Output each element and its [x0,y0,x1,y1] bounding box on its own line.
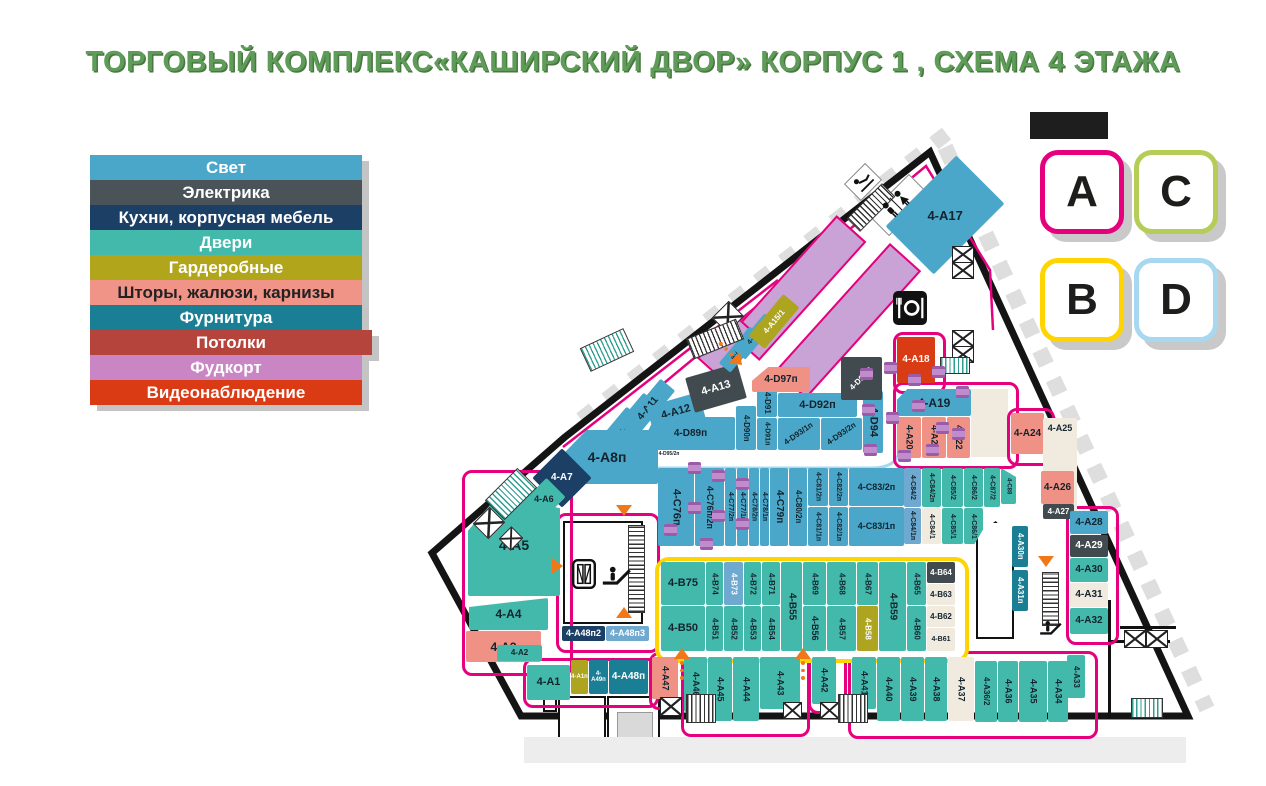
utility-closet [617,712,653,740]
unit-label: 4-A48п2 [566,629,601,638]
unit-label: 4-C84/2 [909,475,916,500]
foodcourt-table-icon [912,400,925,412]
escalator-direction-arrow-icon [674,648,690,682]
unit-4-D90п[interactable]: 4-D90п [736,406,756,450]
unit-label: 4-C88 [1006,478,1012,494]
foodcourt-table-icon [664,524,677,536]
elevator-icon [952,262,974,279]
stairs-icon [1131,698,1163,718]
unit-4-C84/1[interactable]: 4-C84/1 [922,508,941,544]
unit-label: 4-B68 [838,573,846,595]
unit-label: 4-C83/1п [858,522,895,531]
unit-4-A29[interactable]: 4-A29 [1070,535,1108,557]
unit-4-A28[interactable]: 4-A28 [1070,511,1108,534]
unit-label: 4-B72 [749,573,757,595]
unit-label: 4-A45 [716,677,725,702]
unit-4-B73[interactable]: 4-B73 [724,562,743,605]
unit-label: 4-B60 [913,618,921,640]
unit-label: 4-A25 [1048,424,1073,433]
unit-label: 4-D90п [742,415,750,442]
unit-4-A1п[interactable]: 4-A1п [571,660,588,694]
unit-4-B63[interactable]: 4-B63 [927,584,955,605]
unit-4-A35[interactable]: 4-A35 [1019,661,1047,722]
unit-label: 4-A27 [1048,508,1070,516]
unit-label: 4-C78/1п [761,492,768,521]
unit-4-C77/2п[interactable]: 4-C77/2п [725,468,736,546]
unit-label: 4-D95/2п [659,452,680,457]
unit-label: 4-B64 [930,569,952,577]
unit-4-D89п[interactable]: 4-D89п [646,417,735,450]
unit-label: 4-C81/1п [815,512,822,541]
unit-label: 4-B61 [931,636,950,643]
unit-label: 4-B53 [749,618,757,640]
unit-4-C79п[interactable]: 4-C79п [770,468,788,546]
unit-label: 4-A17 [927,209,962,222]
unit-4-B68[interactable]: 4-B68 [827,562,856,605]
down-arrow-icon [616,505,632,516]
unit-4-B51[interactable]: 4-B51 [706,606,723,651]
unit-4-B75[interactable]: 4-B75 [661,562,705,605]
unit-label: 4-B57 [838,618,846,640]
unit-label: 4-B65 [913,573,921,595]
unit-label: 4-A20 [905,425,914,450]
unit-label: 4-A43 [776,671,785,696]
foodcourt-table-icon [886,412,899,424]
unit-4-A40[interactable]: 4-A40 [877,657,900,721]
unit-label: 4-C81/2п [815,472,822,501]
unit-4-A26[interactable]: 4-A26 [1041,471,1074,504]
unit-4-B72[interactable]: 4-B72 [744,562,761,605]
unit-label: 4-C76п/2п [705,486,714,529]
unit-4-A48п3[interactable]: 4-A48п3 [606,626,649,641]
elevator-icon [1124,630,1146,648]
unit-4-C84/2[interactable]: 4-C84/2 [904,468,921,507]
restaurant-icon [893,291,927,325]
unit-4-C85/2[interactable]: 4-C85/2 [942,468,963,507]
unit-label: 4-A36/2 [982,677,990,705]
unit-label: 4-D97п [764,375,797,385]
foodcourt-table-icon [688,502,701,514]
unit-label: 4-D89п [674,429,707,439]
unit-label: 4-C77/2п [727,492,734,521]
foodcourt-table-icon [884,362,897,374]
foodcourt-table-icon [932,366,945,378]
foodcourt-table-icon [712,470,725,482]
unit-label: 4-A33 [1072,666,1080,688]
escalator-person-icon [600,562,634,590]
unit-4-C84/2п[interactable]: 4-C84/2п [922,468,941,507]
unit-4-C86/2[interactable]: 4-C86/2 [964,468,983,507]
unit-label: 4-B63 [930,591,952,599]
unit-label: 4-A35 [1029,679,1038,704]
unit-4-C82/1п[interactable]: 4-C82/1п [829,507,848,546]
foodcourt-table-icon [712,510,725,522]
unit-label: 4-C86/2 [970,475,977,500]
unit-label: 4-C79п [774,490,784,523]
escalator-icon [686,694,716,723]
foodcourt-table-icon [936,422,949,434]
unit-4-A49п[interactable]: 4-A49п [589,660,608,694]
unit-label: 4-D91п [764,422,771,445]
unit-4-B60[interactable]: 4-B60 [907,606,926,651]
elevator-doors-icon [572,558,596,590]
escalator-person-icon [1038,618,1064,638]
unit-4-C80/2п[interactable]: 4-C80/2п [789,468,807,546]
unit-label: 4-C80/2п [794,490,802,523]
unit-label: 4-C83/2п [858,483,895,492]
unit-label: 4-B54 [767,618,775,640]
foodcourt-table-icon [860,368,873,380]
unit-4-B52[interactable]: 4-B52 [724,606,743,651]
unit-label: 4-B58 [864,618,872,640]
unit-4-B55[interactable]: 4-B55 [781,562,802,651]
unit-4-C83/2п[interactable]: 4-C83/2п [849,468,904,506]
unit-4-D95/2п[interactable]: 4-D95/2п [648,450,690,459]
unit-label: 4-A2 [511,649,528,657]
unit-4-C81/2п[interactable]: 4-C81/2п [808,468,828,506]
unit-4-D91[interactable]: 4-D91 [757,388,777,417]
unit-4-C78/1п[interactable]: 4-C78/1п [760,468,769,546]
unit-label: 4-B71 [767,573,775,595]
unit-4-B74[interactable]: 4-B74 [706,562,723,605]
unit-label: 4-A13 [700,379,732,398]
unit-4-A30п[interactable]: 4-A30п [1012,526,1028,567]
unit-4-A39[interactable]: 4-A39 [901,657,924,721]
unit-4-A31п[interactable]: 4-A31п [1012,570,1028,611]
unit-label: 4-C87/2 [989,475,996,500]
foodcourt-table-icon [898,450,911,462]
unit-label: 4-B59 [888,593,898,620]
elevator-icon [1146,630,1168,648]
unit-label: 4-A32 [1075,616,1102,626]
unit-4-A30[interactable]: 4-A30 [1070,558,1108,582]
unit-4-A36[interactable]: 4-A36 [998,661,1018,722]
unit-label: 4-A36 [1004,679,1013,704]
unit-label: 4-A47 [661,666,670,691]
floorplan-stage: ТОРГОВЫЙ КОМПЛЕКС«КАШИРСКИЙ ДВОР» КОРПУС… [0,0,1266,786]
unit-label: 4-C86/1 [970,514,977,539]
unit-label: 4-B51 [711,618,719,640]
unit-label: 4-A42 [820,668,829,693]
unit-4-B64[interactable]: 4-B64 [927,562,955,583]
unit-label: 4-A48п [612,672,645,682]
unit-4-A1[interactable]: 4-A1 [527,665,570,700]
unit-4-B57[interactable]: 4-B57 [827,606,856,651]
elevator-icon [952,330,974,347]
unit-label: 4-D93/2п [826,421,858,447]
unit-4-B71[interactable]: 4-B71 [762,562,780,605]
foodcourt-table-icon [700,538,713,550]
unit-4-A2[interactable]: 4-A2 [497,645,542,661]
foodcourt-table-icon [908,374,921,386]
unit-label: 4-B74 [711,573,719,595]
unit-label: 4-C85/1 [949,514,956,539]
elevator-icon [952,246,974,263]
elevator-icon [783,702,802,719]
unit-label: 4-C82/1п [835,512,842,541]
up-arrow-icon [616,607,632,618]
unit-label: 4-C84/1 [928,514,935,539]
unit-4-A24[interactable]: 4-A24 [1011,413,1044,454]
foodcourt-table-icon [862,404,875,416]
unit-4-B61[interactable]: 4-B61 [927,628,955,651]
unit-label: 4-A4 [495,608,521,620]
unit-label: 4-A41 [860,671,869,696]
unit-label: 4-A28 [1075,518,1102,528]
unit-4-B62[interactable]: 4-B62 [927,606,955,627]
foodcourt-table-icon [926,444,939,456]
unit-label: 4-A7 [551,473,573,483]
unit-4-A42[interactable]: 4-A42 [812,657,836,704]
unit-label: 4-B52 [730,618,738,640]
unit-4-A44[interactable]: 4-A44 [733,657,759,721]
unit-label: 4-B50 [668,623,698,634]
unit-4-A48п2[interactable]: 4-A48п2 [562,626,605,641]
unit-4-C83/1п[interactable]: 4-C83/1п [849,507,904,546]
unit-4-A31[interactable]: 4-A31 [1070,583,1108,607]
unit-label: 4-B55 [787,593,797,620]
unit-label: 4-B69 [811,573,819,595]
unit-4-B67[interactable]: 4-B67 [857,562,878,605]
unit-label: 4-C76п [671,489,682,526]
unit-label: 4-B73 [730,573,738,595]
unit-label: 4-A1 [537,677,561,688]
unit-4-A32[interactable]: 4-A32 [1070,608,1108,634]
foodcourt-table-icon [688,462,701,474]
unit-4-A37[interactable]: 4-A37 [948,657,974,721]
unit-label: 4-A38 [932,677,941,702]
sidewalk [524,737,1186,763]
escalator-icon [838,694,868,723]
unit-label: 4-C82/2п [835,472,842,501]
unit-4-D91п[interactable]: 4-D91п [757,418,777,450]
unit-label: 4-A18 [902,355,929,365]
unit-label: 4-C84/1п [909,511,916,540]
foodcourt-table-icon [736,478,749,490]
unit-label: 4-C78/2п [751,492,758,521]
unit-label: 4-A24 [1014,429,1041,439]
unit-4-C78/2п[interactable]: 4-C78/2п [749,468,759,546]
unit-4-D93/1п[interactable]: 4-D93/1п [778,418,820,450]
unit-4-B58[interactable]: 4-B58 [857,606,878,651]
unit-4-B50[interactable]: 4-B50 [661,606,705,651]
unit-label: 4-A40 [884,677,893,702]
unit-label: 4-D92п [799,400,836,411]
unit-4-B65[interactable]: 4-B65 [907,562,926,605]
unit-label: 4-A31п [1016,577,1024,604]
unit-label: 4-A26 [1044,483,1071,493]
foodcourt-table-icon [864,444,877,456]
unit-label: 4-A34 [1054,679,1063,704]
unit-4-B69[interactable]: 4-B69 [803,562,826,605]
unit-4-C85/1[interactable]: 4-C85/1 [942,508,963,544]
elevator-icon [820,702,839,719]
unit-label: 4-A44 [742,677,751,702]
unit-label: 4-A37 [957,677,966,702]
unit-4-A48п[interactable]: 4-A48п [609,660,648,694]
unit-4-C82/2п[interactable]: 4-C82/2п [829,468,848,506]
foodcourt-table-icon [952,428,965,440]
unit-4-A38[interactable]: 4-A38 [925,657,947,721]
unit-label: 4-A8п [588,450,627,464]
down-arrow-icon [1038,556,1054,567]
unit-label: 4-A31 [1075,590,1102,600]
court-area [976,521,1014,639]
unit-label: 4-B75 [668,578,698,589]
unit-label: 4-A39 [908,677,917,702]
unit-label: 4-B67 [864,573,872,595]
unit-label: 4-A49п [589,671,608,683]
unit-label: 4-D91 [763,392,771,414]
escalator-direction-arrow-icon [795,648,811,682]
unit-label: 4-B56 [810,616,819,641]
unit-4-C81/1п[interactable]: 4-C81/1п [808,507,828,546]
unit-label: 4-C84/2п [928,473,935,502]
unit-label: 4-C85/2 [949,475,956,500]
unit-label: 4-A30 [1075,565,1102,575]
unit-4-C84/1п[interactable]: 4-C84/1п [904,508,921,544]
unit-label: 4-A30п [1016,533,1024,560]
unit-4-B59[interactable]: 4-B59 [879,562,906,651]
unit-4-B53[interactable]: 4-B53 [744,606,761,651]
unit-4-A36/2[interactable]: 4-A36/2 [975,661,997,722]
unit-label: 4-A48п3 [610,629,645,638]
unit-label: 4-A29 [1075,541,1102,551]
unit-4-B54[interactable]: 4-B54 [762,606,780,651]
right-arrow-icon [552,558,563,574]
inner-wall [1120,626,1176,629]
unit-4-A34[interactable]: 4-A34 [1048,661,1068,722]
unit-4-A33[interactable]: 4-A33 [1067,655,1085,698]
unit-label: 4-A6 [534,495,554,504]
unit-4-C87/2[interactable]: 4-C87/2 [984,468,1000,507]
elevator-icon [660,697,682,716]
unit-4-D93/2п[interactable]: 4-D93/2п [821,418,862,450]
unit-label: 4-B62 [930,613,952,621]
foodcourt-table-icon [956,386,969,398]
unit-label: 4-A1п [571,674,588,680]
unit-4-B56[interactable]: 4-B56 [803,606,826,651]
foodcourt-table-icon [736,518,749,530]
unit-label: 4-D93/1п [783,421,815,447]
